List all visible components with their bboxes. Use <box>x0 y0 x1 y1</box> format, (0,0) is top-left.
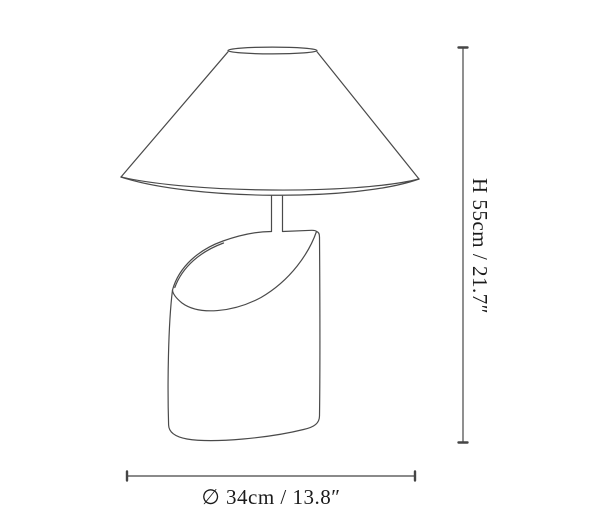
height-dimension-label: H 55cm / 21.7″ <box>467 166 493 326</box>
lamp-line-drawing <box>0 0 600 520</box>
lamp-dimension-diagram: H 55cm / 21.7″ ∅ 34cm / 13.8″ <box>0 0 600 520</box>
lamp-stem <box>272 196 283 232</box>
width-dimension-label: ∅ 34cm / 13.8″ <box>171 483 371 511</box>
lamp-base-outline <box>168 230 320 440</box>
width-dimension-line <box>127 472 415 481</box>
lampshade-outline <box>121 47 419 195</box>
